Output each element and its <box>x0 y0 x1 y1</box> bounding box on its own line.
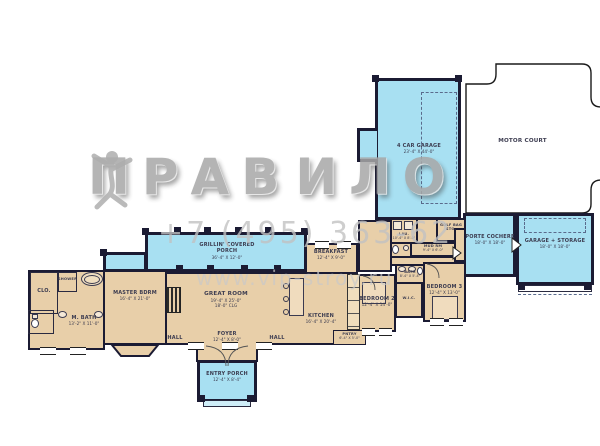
porch-column <box>247 395 254 402</box>
driveway-dashes <box>518 294 592 295</box>
room-master-bdrm <box>103 270 167 345</box>
wall-column <box>176 265 183 272</box>
garage-corner-column <box>372 75 379 82</box>
porch-column <box>204 227 211 234</box>
storage-dashes <box>524 218 586 233</box>
window <box>379 328 392 336</box>
stool-icon <box>283 283 289 289</box>
window <box>337 241 351 249</box>
wall-column <box>241 265 248 272</box>
window <box>315 241 329 249</box>
label-shower: SHOWER <box>58 277 77 281</box>
room-hall-closet <box>416 218 438 244</box>
wall-column <box>274 265 281 272</box>
label-m-bath: M. BATH 13'-2" X 11'-0" <box>62 315 106 327</box>
porch-column <box>235 227 242 234</box>
dryer-icon <box>404 221 413 230</box>
grilling-porch-left <box>103 252 147 272</box>
label-hall-right: HALL <box>262 335 292 341</box>
bed-icon <box>432 296 458 320</box>
porch-column <box>100 249 107 256</box>
window <box>222 342 238 350</box>
porch-column <box>142 228 149 235</box>
window <box>70 347 86 355</box>
stool-icon <box>283 309 289 315</box>
room-garage-hall <box>358 220 392 272</box>
label-closet: CLO. <box>31 288 57 294</box>
toilet-icon <box>392 245 399 254</box>
shower-partition <box>58 272 77 292</box>
label-great-room: GREAT ROOM 19'-4" X 25'-0" 18'-0" CLG <box>195 291 257 308</box>
label-porte-cochere: PORTE COCHERE 18'-0" X 18'-0" <box>465 234 515 246</box>
window <box>430 318 444 326</box>
label-garage-storage: GARAGE + STORAGE 18'-0" X 18'-0" <box>522 238 588 250</box>
label-master-bdrm: MASTER BDRM 16'-4" X 21'-0" <box>105 290 165 302</box>
label-entry-porch: ENTRY PORCH 12'-4" X 8'-4" <box>203 371 251 383</box>
window <box>188 342 204 350</box>
window <box>256 342 272 350</box>
label-laundry: LAU. 10'-4" X 8'-0" <box>391 232 417 241</box>
garage-bump <box>357 128 377 162</box>
label-bedroom2: BEDROOM 2 12'-4" X 14'-0" <box>359 296 395 308</box>
window <box>449 318 463 326</box>
fireplace-icon <box>166 287 181 313</box>
window <box>40 347 56 355</box>
label-breakfast: BREAKFAST 12'-4" X 9'-0" <box>307 249 355 261</box>
porch-column <box>174 227 181 234</box>
label-hall-left: HALL <box>160 335 190 341</box>
label-foyer: FOYER 12'-4" X 8'-0" <box>205 331 249 343</box>
stool-icon <box>283 296 289 302</box>
garage-corner-column <box>455 75 462 82</box>
label-wic: W.I.C. <box>396 296 422 300</box>
label-bath2: BATH 8'-4" X 5'-4" <box>396 270 424 279</box>
kitchen-island-icon <box>289 278 304 316</box>
sink-icon <box>403 245 409 251</box>
wall-column <box>207 265 214 272</box>
label-garage: 4 CAR GARAGE 23'-4" X 44'-0" <box>381 143 457 155</box>
toilet-icon <box>31 319 39 328</box>
label-grilling-porch: GRILLIN' COVERED PORCH 36'-4" X 12'-0" <box>196 242 258 260</box>
label-motor-court: MOTOR COURT <box>480 138 565 145</box>
porch-column <box>301 228 308 235</box>
porch-column <box>518 283 525 290</box>
tub-inner-icon <box>84 275 100 284</box>
porch-column <box>584 283 591 290</box>
label-bedroom3: BEDROOM 3 12'-4" X 13'-0" <box>424 284 465 296</box>
porch-column <box>265 227 272 234</box>
label-mud-rm: MUD RM 9'-4" X 6'-0" <box>412 244 454 253</box>
porch-column <box>198 395 205 402</box>
storage-stoop <box>518 285 592 292</box>
label-pantry: PNTRY 6'-4" X 5'-0" <box>334 332 365 341</box>
washer-icon <box>393 221 402 230</box>
label-golf-bag: GOLF BAG STO. <box>437 223 465 232</box>
entry-porch-step <box>203 400 251 407</box>
label-kitchen: KITCHEN 16'-4" X 20'-4" <box>297 313 345 325</box>
floor-plan: MOTOR COURT 4 CAR GARAGE 23'-4" X 44'-0"… <box>0 0 600 446</box>
